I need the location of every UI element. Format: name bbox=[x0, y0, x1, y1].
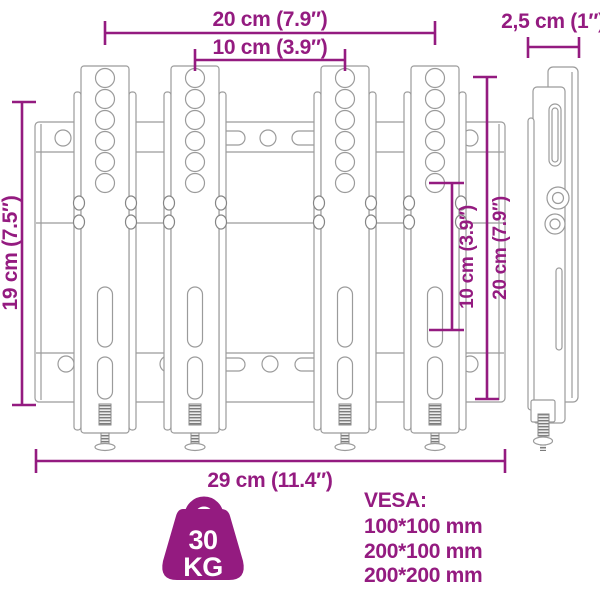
label-height-outer-holes: 20 cm (7.9″) bbox=[490, 196, 511, 300]
rail-1 bbox=[74, 66, 137, 451]
vesa-info: VESA: 100*100 mm 200*100 mm 200*200 mm bbox=[364, 489, 482, 587]
vesa-title: VESA: bbox=[364, 489, 427, 512]
label-plate-height: 19 cm (7.5″) bbox=[0, 195, 22, 310]
rail-3 bbox=[314, 66, 377, 451]
side-view bbox=[528, 67, 578, 451]
label-height-inner-holes: 10 cm (3.9″) bbox=[457, 205, 478, 309]
diagram-svg: 20 cm (7.9″) 10 cm (3.9″) 2,5 cm (1″) 19… bbox=[0, 0, 600, 600]
product-dimension-diagram: 20 cm (7.9″) 10 cm (3.9″) 2,5 cm (1″) 19… bbox=[0, 0, 600, 600]
label-total-width: 29 cm (11.4″) bbox=[207, 469, 332, 492]
badge-unit: KG bbox=[183, 552, 223, 582]
rail-2 bbox=[164, 66, 227, 451]
dimension-total-width: 29 cm (11.4″) bbox=[36, 449, 505, 492]
vesa-size-1: 100*100 mm bbox=[364, 515, 482, 538]
vesa-size-2: 200*100 mm bbox=[364, 540, 482, 563]
label-depth: 2,5 cm (1″) bbox=[501, 10, 600, 33]
label-width-inner-holes: 10 cm (3.9″) bbox=[212, 36, 327, 59]
badge-value: 30 bbox=[188, 525, 217, 555]
dimension-plate-height: 19 cm (7.5″) bbox=[0, 102, 36, 405]
vesa-size-3: 200*200 mm bbox=[364, 564, 482, 587]
dimension-depth: 2,5 cm (1″) bbox=[501, 10, 600, 58]
label-width-outer-holes: 20 cm (7.9″) bbox=[212, 8, 327, 31]
weight-capacity-badge: 30 KG bbox=[162, 502, 243, 583]
